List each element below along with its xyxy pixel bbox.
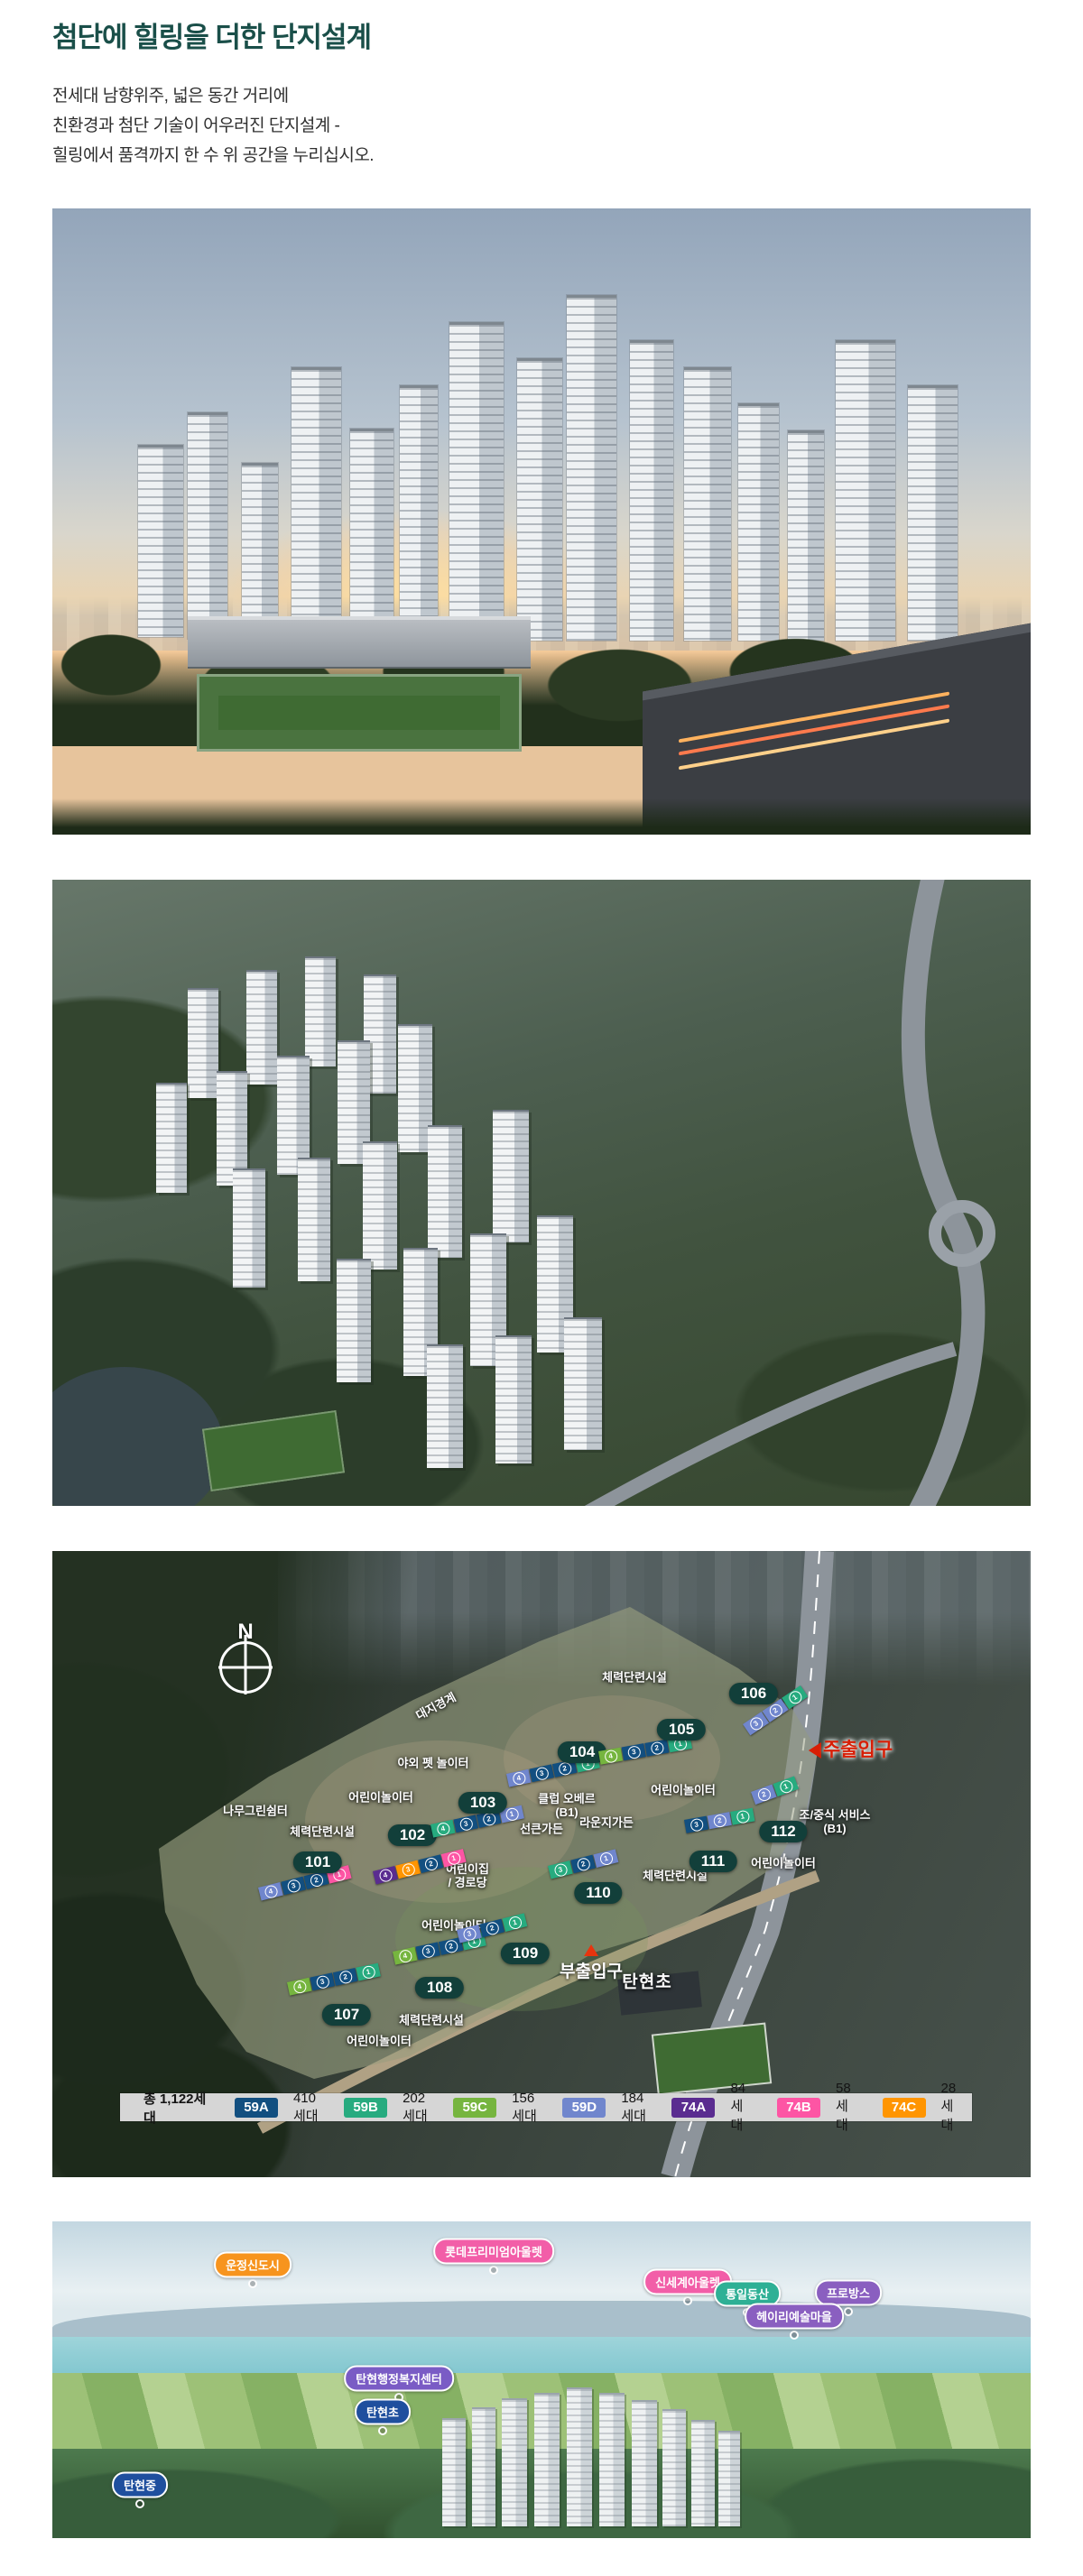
building-number-pill: 109 — [501, 1943, 550, 1964]
aerial-render-image — [52, 880, 1031, 1506]
tower — [188, 988, 218, 1098]
foreground-shadow — [52, 799, 1031, 835]
site-label: 라운지가든 — [579, 1816, 634, 1830]
site-label: 클럽 오베르(B1) — [538, 1792, 595, 1819]
school-building — [188, 616, 531, 667]
tower — [156, 1083, 187, 1193]
unit-legend-items: 59A410세대59B202세대59C156세대59D184세대74A84세대7… — [235, 2081, 972, 2134]
building-number-pill: 107 — [322, 2004, 371, 2026]
site-label: 어린이놀이터 — [348, 1791, 413, 1805]
tower — [428, 1125, 462, 1258]
location-overview-image: 운정신도시롯데프리미엄아울렛신세계아울렛통일동산프로방스헤이리예술마을탄현행정복… — [52, 2221, 1031, 2538]
location-dot — [844, 2307, 853, 2316]
tower — [292, 367, 341, 641]
tower — [567, 2387, 592, 2526]
tower — [718, 2431, 740, 2526]
site-label: 체력단련시설 — [290, 1825, 355, 1839]
tower — [630, 340, 673, 641]
tower — [738, 403, 779, 641]
site-plan-image: N 주출입구 부출입구 총 1,122세대 59A410세대59B202세대59… — [52, 1551, 1031, 2177]
tower — [684, 367, 731, 641]
tower — [908, 385, 958, 641]
site-label: 나무그린쉼터 — [223, 1805, 288, 1818]
site-label: 체력단련시설 — [602, 1671, 667, 1685]
site-label: 선큰가든 — [520, 1823, 563, 1836]
sunset-render-image — [52, 208, 1031, 835]
building-number-pill: 111 — [690, 1851, 737, 1872]
tower — [233, 1168, 265, 1288]
unit-type-count: 84세대 — [730, 2081, 753, 2134]
main-gate-arrow-icon — [801, 1742, 821, 1759]
location-pill: 프로방스 — [815, 2280, 882, 2306]
intro-line: 전세대 남향위주, 넓은 동간 거리에 — [52, 81, 374, 111]
location-pill: 탄현중 — [112, 2472, 168, 2498]
building-number-pill: 105 — [657, 1719, 706, 1740]
site-label: 조/중식 서비스(B1) — [800, 1808, 871, 1835]
tower — [788, 430, 824, 641]
location-dot — [790, 2331, 799, 2340]
location-pill: 롯데프리미엄아울렛 — [433, 2239, 554, 2265]
page-title: 첨단에 힐링을 더한 단지설계 — [52, 14, 371, 55]
location-dot — [248, 2279, 257, 2288]
building-number-pill: 108 — [415, 1977, 464, 1999]
building-number-pill: 103 — [458, 1792, 507, 1814]
intro-line: 힐링에서 품격까지 한 수 위 공간을 누리십시오. — [52, 141, 374, 171]
tower — [298, 1158, 330, 1281]
location-pill: 탄현초 — [355, 2399, 411, 2425]
building-number-pill: 102 — [388, 1824, 437, 1846]
tower — [400, 385, 438, 641]
unit-type-count: 156세대 — [512, 2091, 538, 2125]
unit-type-chip: 74A — [671, 2098, 715, 2118]
tower — [564, 1317, 602, 1450]
tower — [517, 358, 562, 641]
unit-type-chip: 74C — [883, 2098, 926, 2118]
building-number-pill: 110 — [574, 1882, 622, 1904]
tower — [337, 1259, 371, 1382]
tower — [442, 2418, 466, 2526]
tower — [138, 445, 183, 637]
tower — [662, 2409, 686, 2526]
sub-gate-label: 부출입구 — [560, 1937, 623, 1982]
location-dot — [378, 2426, 387, 2435]
unit-type-count: 58세대 — [836, 2081, 858, 2134]
site-label: 체력단련시설 — [399, 2014, 464, 2027]
site-label: 어린이놀이터 — [751, 1857, 816, 1870]
total-units: 총 1,122세대 — [143, 2089, 207, 2127]
tower — [472, 2407, 495, 2526]
unit-type-chip: 59B — [344, 2098, 387, 2118]
tower — [502, 2398, 527, 2526]
sports-field — [197, 674, 522, 752]
location-pill: 운정신도시 — [214, 2252, 292, 2278]
building-number-pill: 112 — [759, 1821, 807, 1842]
unit-type-count: 202세대 — [403, 2091, 429, 2125]
unit-legend: 총 1,122세대 59A410세대59B202세대59C156세대59D184… — [120, 2093, 972, 2121]
unit-type-count: 184세대 — [621, 2091, 647, 2125]
tower — [836, 340, 895, 641]
tower — [691, 2420, 715, 2526]
site-label: 야외 펫 놀이터 — [398, 1757, 469, 1770]
site-label: 어린이놀이터 — [347, 2035, 412, 2048]
unit-type-chip: 59D — [562, 2098, 606, 2118]
compass-icon: N — [219, 1620, 272, 1694]
tower — [427, 1344, 463, 1468]
page: 첨단에 힐링을 더한 단지설계 전세대 남향위주, 넓은 동간 거리에 친환경과… — [0, 0, 1083, 2576]
tower — [599, 2393, 625, 2526]
tower — [363, 1141, 397, 1270]
tower — [495, 1335, 532, 1463]
tower — [246, 970, 277, 1085]
unit-type-chip: 59C — [453, 2098, 496, 2118]
location-dot — [683, 2296, 692, 2305]
intro-line: 친환경과 첨단 기술이 어우러진 단지설계 - — [52, 111, 374, 141]
site-label: 어린이놀이터 — [651, 1784, 716, 1797]
unit-type-count: 410세대 — [293, 2091, 319, 2125]
intro-paragraph: 전세대 남향위주, 넓은 동간 거리에 친환경과 첨단 기술이 어우러진 단지설… — [52, 81, 374, 171]
tower — [493, 1110, 529, 1242]
tower — [449, 322, 504, 641]
tower — [567, 295, 616, 641]
sub-gate-arrow-icon — [584, 1937, 598, 1956]
tower — [305, 956, 336, 1066]
location-pill: 헤이리예술마을 — [745, 2304, 844, 2330]
site-label: 탄현초 — [622, 1976, 671, 1990]
tower — [534, 2393, 560, 2526]
building-number-pill: 106 — [729, 1683, 778, 1704]
tower — [350, 429, 393, 639]
unit-type-count: 28세대 — [941, 2081, 964, 2134]
tower — [188, 412, 227, 639]
site-label: 어린이집/ 경로당 — [446, 1862, 489, 1889]
main-gate-label: 주출입구 — [801, 1735, 893, 1762]
building-number-pill: 101 — [293, 1851, 342, 1873]
location-pill: 탄현행정복지센터 — [344, 2366, 454, 2392]
tower — [632, 2400, 657, 2526]
location-dot — [489, 2266, 498, 2275]
unit-type-chip: 59A — [235, 2098, 278, 2118]
unit-type-chip: 74B — [777, 2098, 820, 2118]
location-dot — [135, 2499, 144, 2508]
